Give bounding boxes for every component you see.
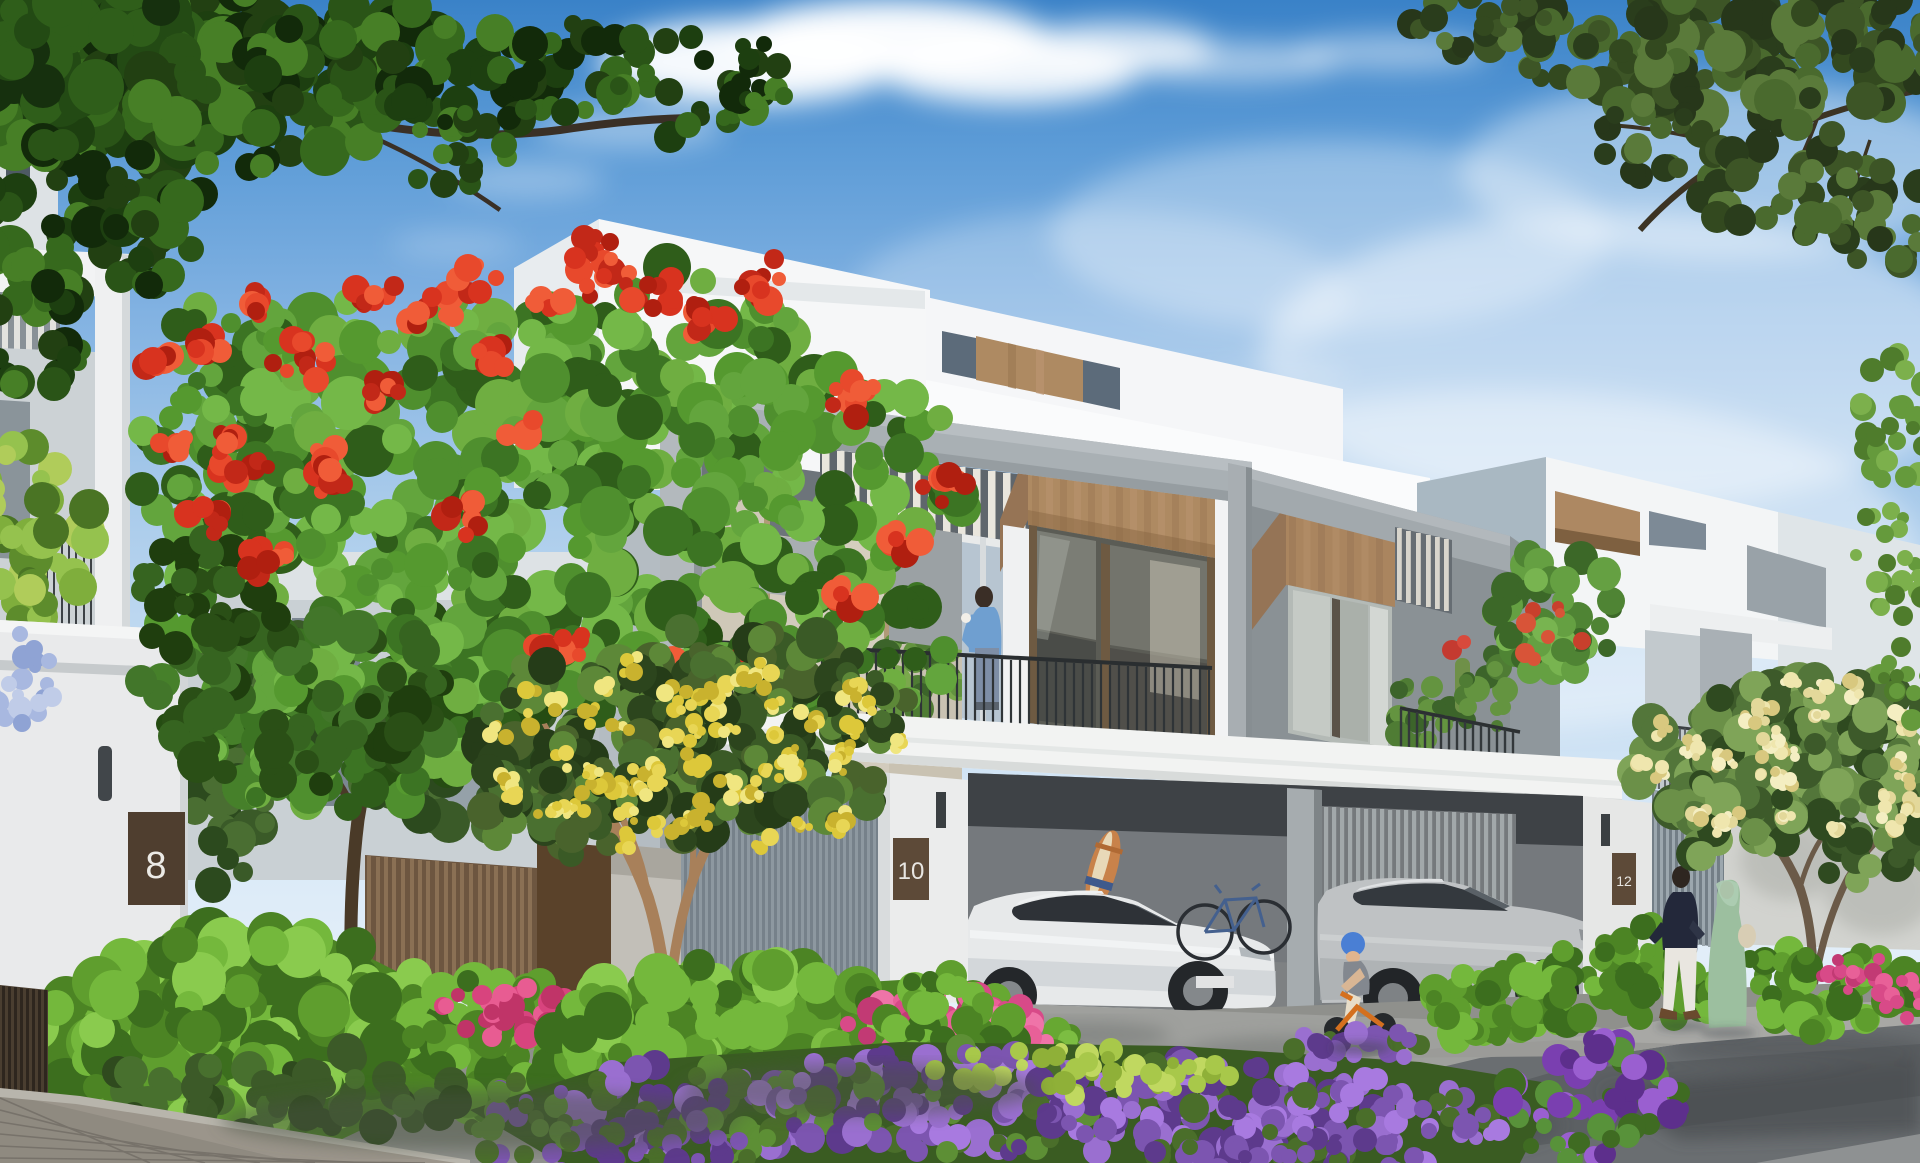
svg-text:12: 12 xyxy=(1616,873,1632,889)
svg-text:8: 8 xyxy=(145,845,166,887)
svg-text:10: 10 xyxy=(898,858,925,885)
